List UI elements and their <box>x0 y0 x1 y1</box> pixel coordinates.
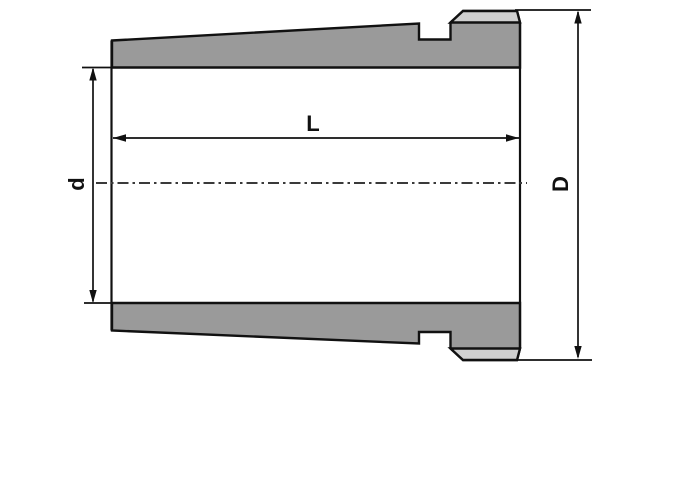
bore-diameter-arrow-up-icon <box>89 68 96 81</box>
thread-chamfer-upper <box>451 11 521 23</box>
length-arrow-right-icon <box>506 134 519 141</box>
drawing-svg: L d D <box>0 0 674 501</box>
adapter-sleeve-drawing: L d D <box>0 0 674 501</box>
outer-diameter-label: D <box>548 176 573 192</box>
bore-diameter-label: d <box>64 177 89 190</box>
length-arrow-left-icon <box>113 134 126 141</box>
length-label: L <box>306 111 319 136</box>
outer-diameter-arrow-up-icon <box>574 11 581 24</box>
thread-chamfer-lower <box>451 349 521 361</box>
bore-diameter-arrow-down-icon <box>89 290 96 303</box>
outer-diameter-arrow-down-icon <box>574 346 581 359</box>
